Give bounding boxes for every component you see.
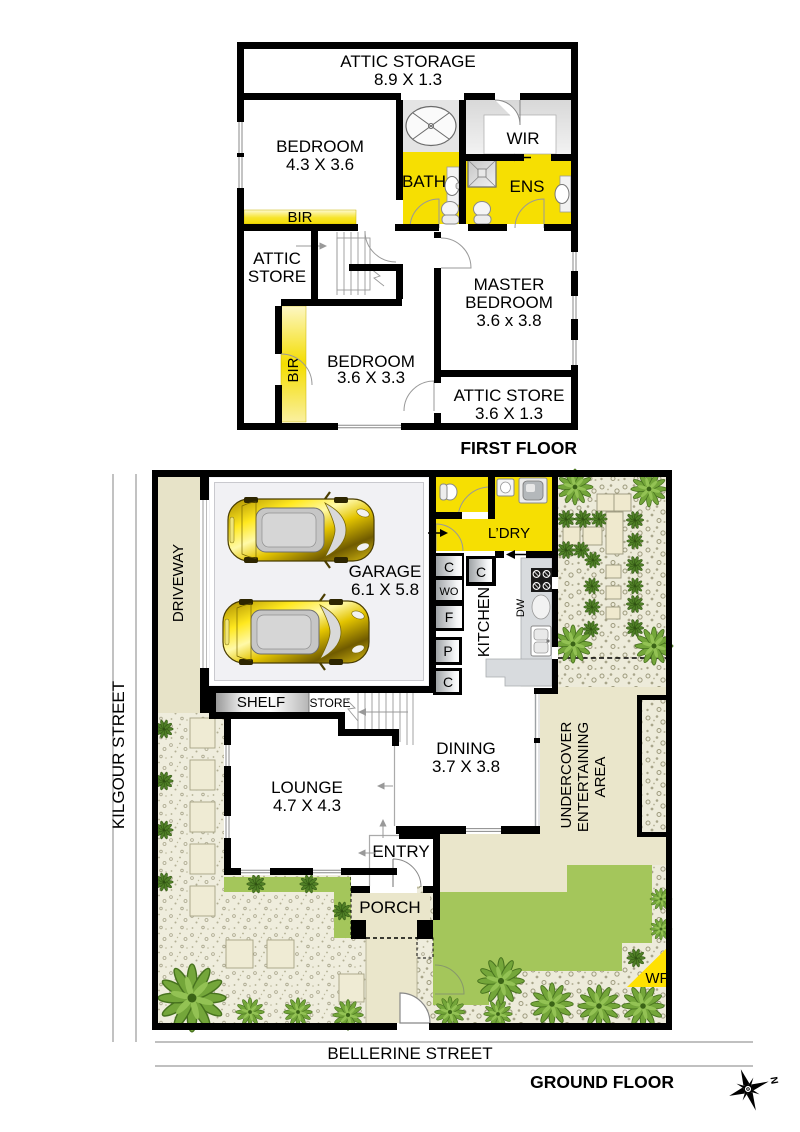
svg-text:4.3 X 3.6: 4.3 X 3.6 bbox=[286, 155, 354, 174]
svg-text:UNDERCOVER: UNDERCOVER bbox=[558, 721, 575, 828]
svg-text:GARAGE: GARAGE bbox=[349, 562, 422, 581]
svg-text:KILGOUR STREET: KILGOUR STREET bbox=[109, 681, 128, 829]
svg-text:BIR: BIR bbox=[287, 209, 312, 226]
svg-text:WF: WF bbox=[645, 970, 668, 987]
svg-text:3.6 x 3.8: 3.6 x 3.8 bbox=[476, 311, 541, 330]
svg-text:DRIVEWAY: DRIVEWAY bbox=[170, 544, 187, 622]
svg-text:3.6 X 3.3: 3.6 X 3.3 bbox=[337, 368, 405, 387]
svg-text:ENS: ENS bbox=[510, 177, 545, 196]
svg-text:BEDROOM: BEDROOM bbox=[465, 293, 553, 312]
svg-text:MASTER: MASTER bbox=[474, 275, 545, 294]
svg-text:BIR: BIR bbox=[285, 357, 302, 382]
svg-text:LOUNGE: LOUNGE bbox=[271, 778, 343, 797]
svg-text:AREA: AREA bbox=[592, 757, 609, 798]
svg-text:DINING: DINING bbox=[436, 739, 496, 758]
svg-text:ENTRY: ENTRY bbox=[372, 842, 429, 861]
svg-text:KITCHEN: KITCHEN bbox=[476, 587, 493, 657]
svg-text:ENTERTAINING: ENTERTAINING bbox=[575, 722, 592, 832]
svg-text:ATTIC STORAGE: ATTIC STORAGE bbox=[340, 52, 475, 71]
svg-text:STORE: STORE bbox=[248, 267, 306, 286]
svg-text:4.7 X 4.3: 4.7 X 4.3 bbox=[273, 796, 341, 815]
svg-text:STORE: STORE bbox=[309, 696, 350, 710]
svg-text:ATTIC: ATTIC bbox=[253, 249, 301, 268]
svg-text:BATH: BATH bbox=[402, 172, 446, 191]
svg-text:GROUND FLOOR: GROUND FLOOR bbox=[530, 1072, 674, 1092]
svg-text:3.7 X 3.8: 3.7 X 3.8 bbox=[432, 757, 500, 776]
svg-text:C: C bbox=[444, 559, 454, 575]
svg-text:C: C bbox=[443, 674, 453, 690]
svg-text:PORCH: PORCH bbox=[359, 898, 420, 917]
svg-text:C: C bbox=[476, 564, 486, 580]
svg-text:P: P bbox=[443, 643, 452, 659]
svg-text:BEDROOM: BEDROOM bbox=[276, 137, 364, 156]
svg-text:8.9 X 1.3: 8.9 X 1.3 bbox=[374, 70, 442, 89]
svg-text:BELLERINE STREET: BELLERINE STREET bbox=[327, 1044, 492, 1063]
svg-text:WIR: WIR bbox=[506, 129, 539, 148]
svg-text:3.6 X 1.3: 3.6 X 1.3 bbox=[475, 404, 543, 423]
svg-text:L’DRY: L’DRY bbox=[488, 525, 530, 542]
svg-text:6.1 X 5.8: 6.1 X 5.8 bbox=[351, 580, 419, 599]
svg-text:ATTIC STORE: ATTIC STORE bbox=[454, 386, 565, 405]
svg-text:F: F bbox=[445, 609, 454, 625]
svg-text:WO: WO bbox=[440, 586, 459, 598]
svg-text:SHELF: SHELF bbox=[237, 694, 285, 711]
svg-text:FIRST FLOOR: FIRST FLOOR bbox=[460, 438, 577, 458]
svg-text:DW: DW bbox=[515, 598, 527, 617]
